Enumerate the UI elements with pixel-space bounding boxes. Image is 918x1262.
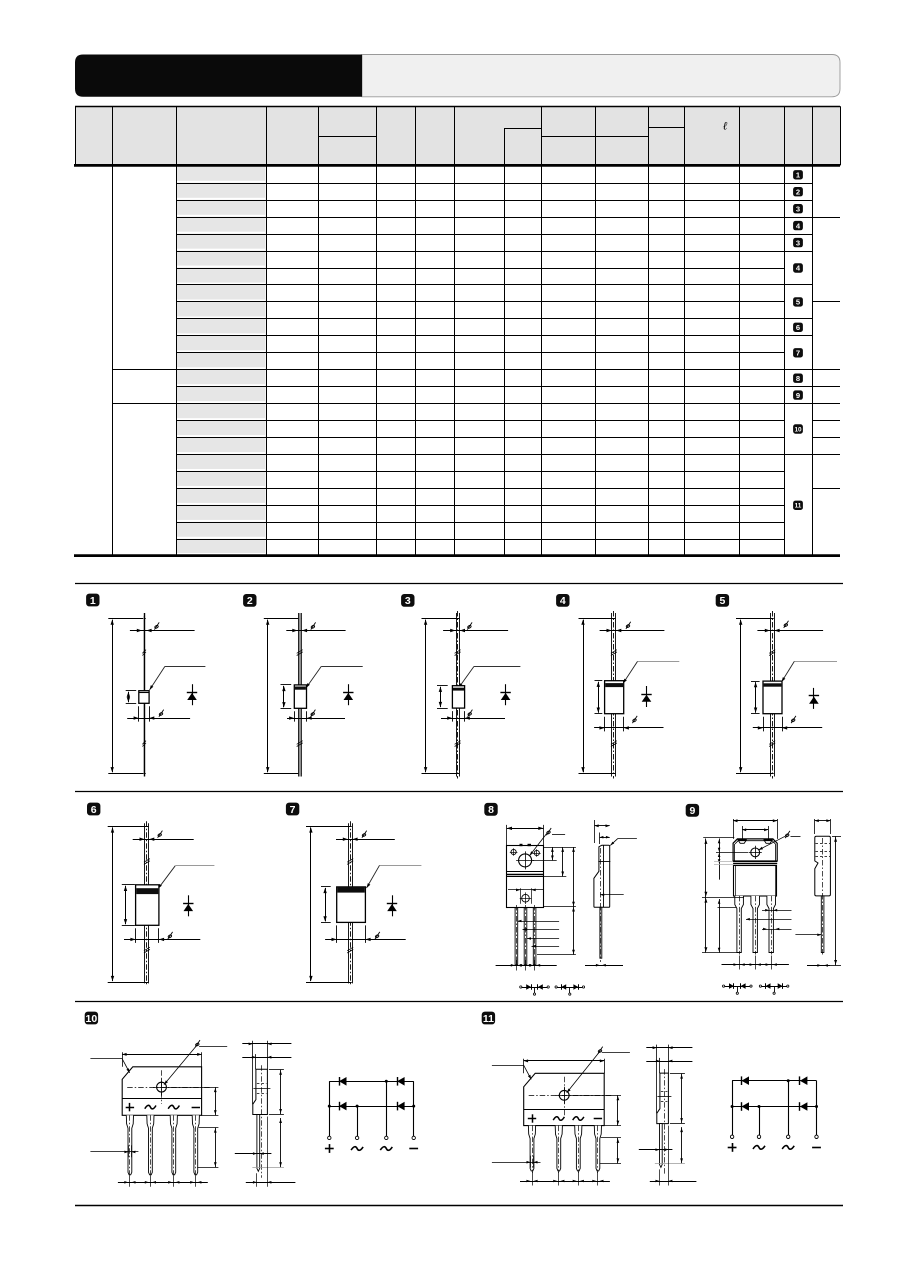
svg-text:11: 11 <box>795 503 802 510</box>
svg-text:3: 3 <box>405 595 411 607</box>
svg-text:7: 7 <box>290 804 296 816</box>
svg-text:4: 4 <box>560 595 566 607</box>
svg-text:7: 7 <box>796 349 800 358</box>
svg-text:11: 11 <box>483 1013 494 1025</box>
svg-text:8: 8 <box>796 374 800 383</box>
svg-text:ℓ: ℓ <box>723 121 728 133</box>
svg-text:3: 3 <box>796 238 800 247</box>
svg-text:9: 9 <box>796 391 800 400</box>
svg-text:8: 8 <box>488 804 494 816</box>
svg-text:9: 9 <box>689 805 695 817</box>
svg-text:6: 6 <box>796 323 800 332</box>
svg-text:10: 10 <box>794 426 802 433</box>
svg-text:5: 5 <box>719 595 725 607</box>
svg-text:2: 2 <box>796 188 800 197</box>
svg-text:6: 6 <box>91 804 97 816</box>
svg-text:10: 10 <box>86 1013 98 1025</box>
svg-text:1: 1 <box>90 595 96 607</box>
svg-text:2: 2 <box>247 595 253 607</box>
svg-text:3: 3 <box>796 204 800 213</box>
